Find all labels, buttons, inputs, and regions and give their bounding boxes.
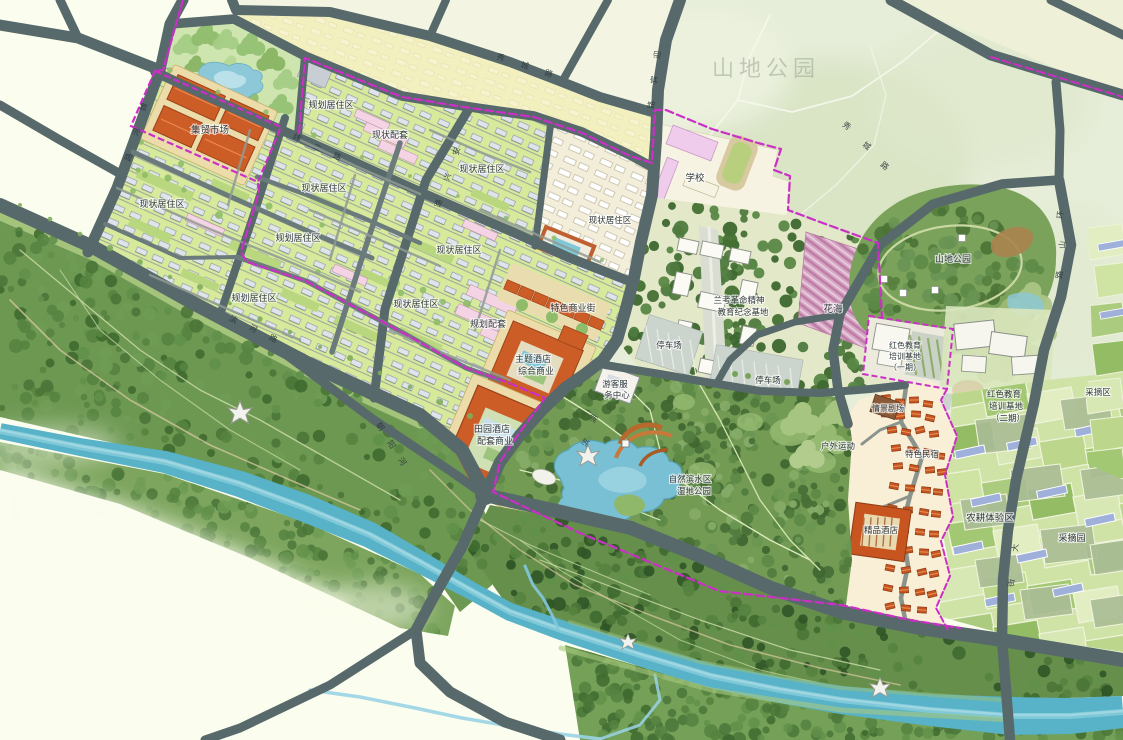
svg-text:综合商业: 综合商业: [518, 365, 554, 376]
svg-text:培训基地: 培训基地: [889, 351, 921, 361]
svg-text:集贸市场: 集贸市场: [191, 124, 229, 136]
svg-text:规划配套: 规划配套: [470, 318, 506, 329]
svg-text:务中心: 务中心: [604, 390, 630, 400]
svg-text:游客服: 游客服: [602, 379, 628, 389]
svg-text:现状居住区: 现状居住区: [139, 198, 184, 209]
svg-text:停车场: 停车场: [755, 375, 781, 385]
svg-text:采摘园: 采摘园: [1058, 532, 1085, 543]
svg-text:路: 路: [1054, 270, 1065, 279]
svg-text:（二期）: （二期）: [991, 413, 1025, 423]
svg-text:农耕体验区: 农耕体验区: [966, 512, 1014, 524]
svg-text:山地公园: 山地公园: [712, 56, 820, 81]
svg-text:特色民宿: 特色民宿: [905, 449, 939, 459]
svg-text:山地公园: 山地公园: [935, 253, 971, 264]
svg-text:特色商业街: 特色商业街: [550, 302, 595, 313]
svg-text:现状居住区: 现状居住区: [436, 244, 481, 255]
svg-text:规划居住区: 规划居住区: [308, 99, 353, 110]
svg-text:山: 山: [1057, 240, 1068, 249]
svg-text:主题酒店: 主题酒店: [515, 353, 551, 364]
svg-text:宾: 宾: [649, 75, 660, 84]
svg-text:田园酒店: 田园酒店: [474, 423, 510, 434]
svg-text:路: 路: [646, 100, 657, 109]
svg-text:自然滨水区: 自然滨水区: [669, 474, 712, 484]
svg-text:教育纪念基地: 教育纪念基地: [717, 307, 769, 317]
svg-text:湿地公园: 湿地公园: [677, 486, 711, 496]
svg-text:规划居住区: 规划居住区: [275, 232, 320, 243]
svg-text:红色教育: 红色教育: [987, 389, 1021, 399]
svg-text:情景剧场: 情景剧场: [872, 403, 904, 413]
svg-text:街: 街: [1006, 578, 1017, 587]
svg-text:现状居住区: 现状居住区: [589, 215, 632, 225]
svg-text:配套商业: 配套商业: [477, 435, 513, 446]
svg-text:采摘区: 采摘区: [1085, 387, 1111, 397]
svg-text:兰考革命精神: 兰考革命精神: [713, 295, 764, 305]
svg-text:红色教育: 红色教育: [889, 340, 921, 350]
svg-text:花海: 花海: [823, 303, 843, 315]
svg-text:学校: 学校: [685, 172, 705, 184]
svg-text:大: 大: [1010, 543, 1021, 552]
svg-text:培训基地: 培训基地: [989, 401, 1024, 411]
svg-text:户外运动: 户外运动: [821, 441, 856, 451]
svg-text:（一期）: （一期）: [889, 363, 921, 372]
svg-text:现状居住区: 现状居住区: [459, 163, 504, 174]
svg-text:停车场: 停车场: [656, 340, 682, 350]
svg-text:现状配套: 现状配套: [372, 129, 408, 140]
svg-text:迎: 迎: [652, 50, 663, 59]
svg-text:环: 环: [1056, 210, 1066, 219]
svg-text:精品酒店: 精品酒店: [864, 525, 899, 535]
svg-text:现状居住区: 现状居住区: [393, 298, 438, 309]
svg-text:规划居住区: 规划居住区: [231, 292, 276, 303]
svg-text:现状居住区: 现状居住区: [301, 182, 346, 193]
